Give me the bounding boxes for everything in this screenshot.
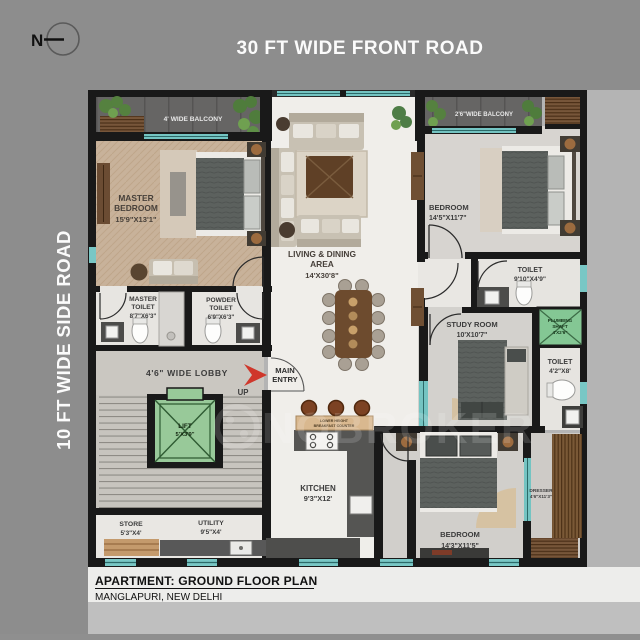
- svg-text:BEDROOM: BEDROOM: [440, 530, 480, 539]
- svg-text:LIVING & DINING: LIVING & DINING: [288, 249, 356, 259]
- svg-text:KITCHEN: KITCHEN: [300, 484, 336, 493]
- svg-text:SHAFT: SHAFT: [552, 324, 568, 329]
- svg-text:5'3"X4': 5'3"X4': [121, 530, 142, 537]
- svg-text:MASTER: MASTER: [129, 296, 157, 303]
- svg-text:2'6"WIDE BALCONY: 2'6"WIDE BALCONY: [455, 112, 513, 118]
- svg-text:UP: UP: [238, 388, 249, 397]
- svg-text:14'X30'8": 14'X30'8": [305, 271, 339, 280]
- svg-text:LIFT: LIFT: [178, 423, 192, 430]
- svg-text:BEDROOM: BEDROOM: [114, 203, 158, 213]
- svg-text:MASTER: MASTER: [118, 193, 153, 203]
- svg-text:APARTMENT: GROUND FLOOR PLAN: APARTMENT: GROUND FLOOR PLAN: [95, 574, 317, 588]
- svg-text:N: N: [31, 31, 43, 50]
- svg-text:4'6" WIDE LOBBY: 4'6" WIDE LOBBY: [146, 368, 228, 378]
- svg-text:UTILITY: UTILITY: [198, 520, 224, 527]
- svg-text:POWDER: POWDER: [206, 297, 236, 304]
- svg-text:14'5"X11'7": 14'5"X11'7": [429, 215, 467, 222]
- svg-text:10'X10'7": 10'X10'7": [457, 332, 488, 339]
- svg-text:30 FT WIDE FRONT ROAD: 30 FT WIDE FRONT ROAD: [237, 38, 484, 59]
- svg-text:TOILET: TOILET: [518, 267, 543, 274]
- svg-text:TOILET: TOILET: [131, 304, 154, 311]
- svg-text:AREA: AREA: [310, 259, 334, 269]
- svg-text:PLUMBING: PLUMBING: [548, 318, 573, 323]
- svg-text:10 FT WIDE SIDE ROAD: 10 FT WIDE SIDE ROAD: [53, 230, 74, 450]
- svg-text:9'3"X12': 9'3"X12': [304, 494, 333, 503]
- svg-text:15'9"X13'1": 15'9"X13'1": [115, 215, 157, 224]
- svg-text:4'2"X8': 4'2"X8': [549, 368, 571, 375]
- svg-text:STORE: STORE: [119, 521, 143, 528]
- svg-text:TOILET: TOILET: [209, 305, 232, 312]
- svg-text:8'7"X6'3": 8'7"X6'3": [130, 313, 157, 320]
- svg-text:9'5"X4': 9'5"X4': [201, 529, 222, 536]
- svg-text:5'X3'9": 5'X3'9": [175, 432, 194, 438]
- svg-text:4' WIDE BALCONY: 4' WIDE BALCONY: [164, 116, 223, 123]
- svg-text:6'9"X6'3": 6'9"X6'3": [208, 314, 235, 321]
- svg-text:ENTRY: ENTRY: [272, 375, 297, 384]
- svg-text:4'6"X11'3": 4'6"X11'3": [530, 494, 552, 499]
- svg-text:TOILET: TOILET: [548, 359, 573, 366]
- svg-text:9'10"X4'9": 9'10"X4'9": [514, 276, 546, 283]
- svg-text:MAIN: MAIN: [275, 366, 294, 375]
- svg-text:STUDY ROOM: STUDY ROOM: [446, 320, 497, 329]
- svg-text:MANGLAPURI, NEW DELHI: MANGLAPURI, NEW DELHI: [95, 592, 222, 603]
- svg-text:NOBROKER: NOBROKER: [262, 404, 535, 453]
- svg-text:4'X2'6": 4'X2'6": [552, 330, 567, 335]
- svg-text:BEDROOM: BEDROOM: [429, 203, 469, 212]
